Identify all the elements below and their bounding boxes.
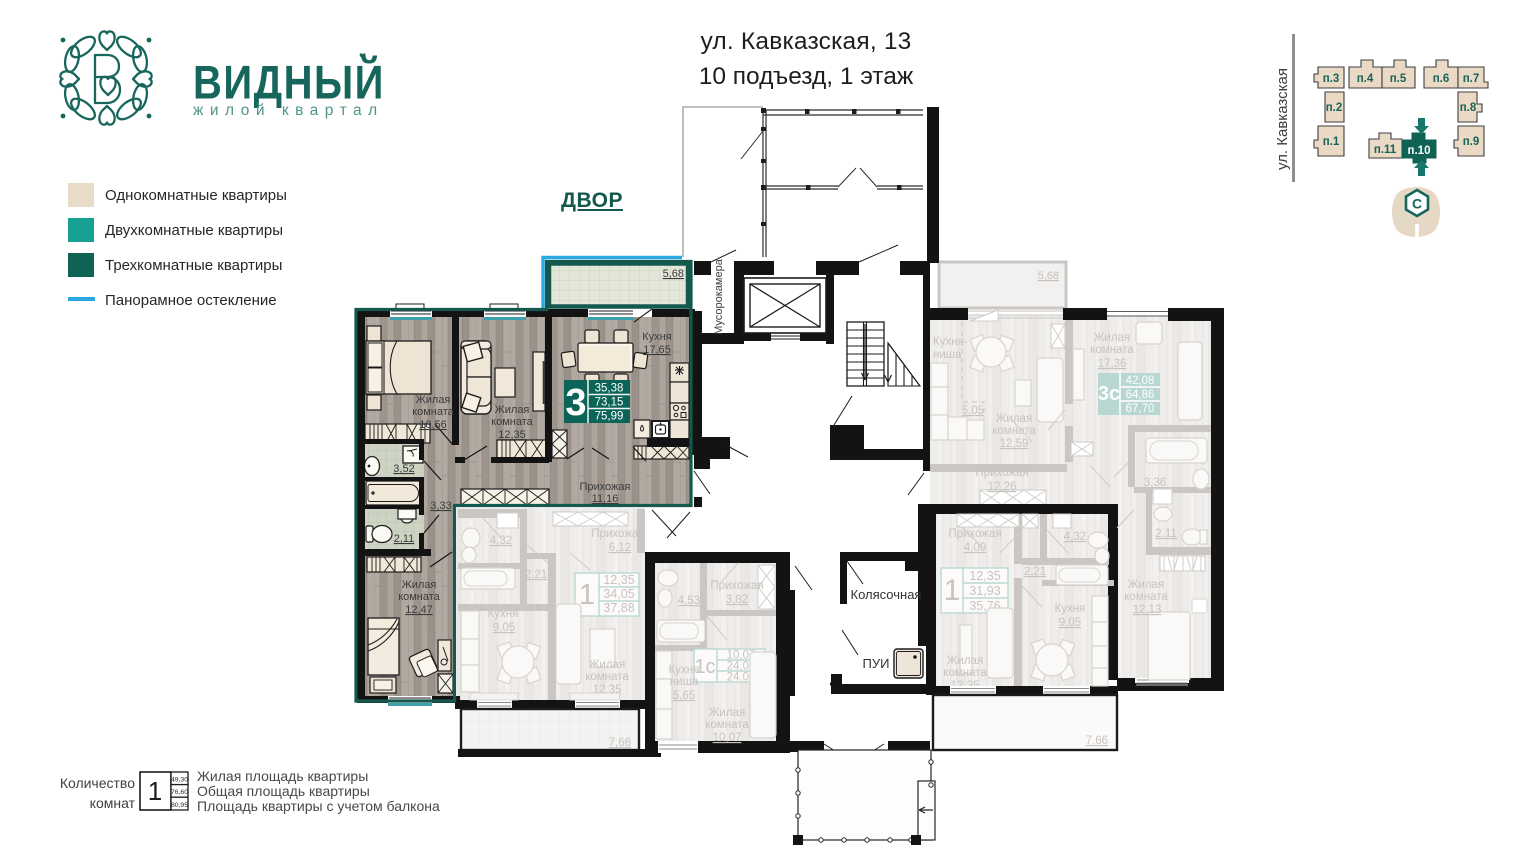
svg-text:Жилая: Жилая <box>416 394 451 406</box>
svg-text:3,52: 3,52 <box>393 463 414 475</box>
svg-text:11,16: 11,16 <box>592 493 619 505</box>
svg-text:Жилая: Жилая <box>1094 332 1130 344</box>
svg-text:5,68: 5,68 <box>1038 270 1059 282</box>
svg-text:3,36: 3,36 <box>1144 477 1166 489</box>
svg-text:4,53: 4,53 <box>678 595 700 607</box>
svg-text:12,35: 12,35 <box>498 429 526 441</box>
svg-text:п.9: п.9 <box>1463 136 1480 148</box>
svg-text:ниша: ниша <box>670 676 699 688</box>
svg-text:7,66: 7,66 <box>1086 735 1108 747</box>
svg-text:73,15: 73,15 <box>595 397 624 409</box>
svg-text:Мусорокамера: Мусорокамера <box>713 258 725 335</box>
svg-text:п.5: п.5 <box>1390 73 1407 85</box>
svg-text:Кухня: Кухня <box>669 664 700 676</box>
svg-text:75,99: 75,99 <box>595 411 624 423</box>
svg-text:3,33: 3,33 <box>430 500 451 512</box>
svg-text:1: 1 <box>579 579 595 611</box>
svg-text:Колясочная: Колясочная <box>851 587 922 602</box>
svg-text:2,11: 2,11 <box>394 533 415 545</box>
svg-text:2,21: 2,21 <box>1024 566 1046 578</box>
svg-text:п.11: п.11 <box>1374 144 1397 156</box>
svg-text:12,35: 12,35 <box>603 573 634 587</box>
svg-text:Прихожая: Прихожая <box>591 528 644 540</box>
svg-text:комната: комната <box>398 591 440 603</box>
svg-text:Жилая: Жилая <box>947 655 983 667</box>
svg-text:12,26: 12,26 <box>988 481 1017 493</box>
svg-text:Кухня-: Кухня- <box>933 336 968 348</box>
svg-text:п.6: п.6 <box>1433 73 1450 85</box>
svg-text:10,07: 10,07 <box>713 732 742 744</box>
svg-text:Жилая: Жилая <box>589 659 625 671</box>
svg-text:комната: комната <box>943 667 987 679</box>
svg-text:5,05: 5,05 <box>962 405 984 417</box>
svg-text:34,05: 34,05 <box>603 587 634 601</box>
svg-text:комната: комната <box>412 406 454 418</box>
svg-text:комната: комната <box>1090 344 1134 356</box>
svg-text:п.2: п.2 <box>1326 102 1343 114</box>
svg-text:17,36: 17,36 <box>1098 358 1127 370</box>
svg-text:3,82: 3,82 <box>726 594 748 606</box>
svg-text:комната: комната <box>491 416 533 428</box>
svg-text:Кухня: Кухня <box>642 331 671 343</box>
svg-text:комната: комната <box>1124 591 1168 603</box>
svg-text:4,32: 4,32 <box>1064 531 1086 543</box>
svg-text:комната: комната <box>705 719 749 731</box>
svg-text:1: 1 <box>944 574 961 607</box>
svg-text:42,08: 42,08 <box>1126 375 1155 387</box>
svg-text:ПУИ: ПУИ <box>863 656 890 671</box>
svg-text:п.7: п.7 <box>1463 73 1480 85</box>
svg-text:3: 3 <box>565 382 586 424</box>
svg-text:Жилая: Жилая <box>402 579 437 591</box>
svg-text:Прихожая: Прихожая <box>580 481 631 493</box>
svg-text:6,12: 6,12 <box>609 542 631 554</box>
svg-text:Кухня: Кухня <box>488 608 519 620</box>
svg-text:Прихожая: Прихожая <box>975 467 1028 479</box>
svg-text:9,05: 9,05 <box>1059 617 1081 629</box>
svg-text:2,21: 2,21 <box>525 569 547 581</box>
svg-text:5,68: 5,68 <box>663 268 684 280</box>
svg-text:Прихожая: Прихожая <box>710 580 763 592</box>
svg-text:3с: 3с <box>1098 383 1120 405</box>
svg-text:9,05: 9,05 <box>493 622 515 634</box>
svg-text:17,65: 17,65 <box>643 344 671 356</box>
svg-text:Жилая: Жилая <box>996 413 1032 425</box>
svg-text:64,86: 64,86 <box>1126 389 1155 401</box>
svg-text:2,11: 2,11 <box>1155 528 1177 540</box>
svg-text:ниша: ниша <box>933 349 962 361</box>
svg-text:12,47: 12,47 <box>405 604 433 616</box>
svg-text:10,56: 10,56 <box>419 419 447 431</box>
svg-text:7,66: 7,66 <box>609 737 631 749</box>
svg-text:п.3: п.3 <box>1323 73 1340 85</box>
svg-text:п.1: п.1 <box>1323 136 1340 148</box>
svg-text:Жилая: Жилая <box>709 707 745 719</box>
svg-text:комната: комната <box>585 671 629 683</box>
svg-text:п.4: п.4 <box>1357 73 1374 85</box>
svg-text:комната: комната <box>992 425 1036 437</box>
svg-text:п.8: п.8 <box>1460 102 1477 114</box>
svg-text:37,88: 37,88 <box>603 601 634 615</box>
svg-text:12,59: 12,59 <box>1000 438 1029 450</box>
svg-text:35,38: 35,38 <box>595 383 624 395</box>
svg-text:4,32: 4,32 <box>490 535 512 547</box>
svg-text:C: C <box>1412 196 1422 212</box>
svg-text:5,65: 5,65 <box>673 690 695 702</box>
svg-text:31,93: 31,93 <box>969 584 1000 598</box>
svg-text:Кухня: Кухня <box>1055 603 1086 615</box>
svg-text:Жилая: Жилая <box>495 404 530 416</box>
svg-text:12,35: 12,35 <box>969 569 1000 583</box>
svg-text:12,13: 12,13 <box>1133 604 1162 616</box>
svg-text:67,70: 67,70 <box>1126 403 1155 415</box>
svg-text:Прихожая: Прихожая <box>948 528 1001 540</box>
svg-text:п.10: п.10 <box>1408 145 1431 157</box>
svg-text:Жилая: Жилая <box>1128 579 1164 591</box>
